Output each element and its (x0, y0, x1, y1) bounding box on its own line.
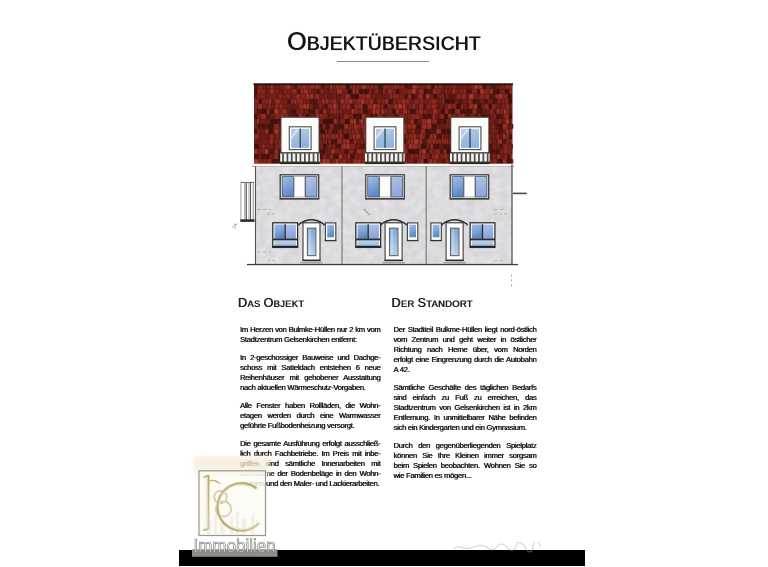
svg-text:24,: 24, (231, 222, 238, 230)
svg-text:Immobilien: Immobilien (194, 535, 276, 556)
